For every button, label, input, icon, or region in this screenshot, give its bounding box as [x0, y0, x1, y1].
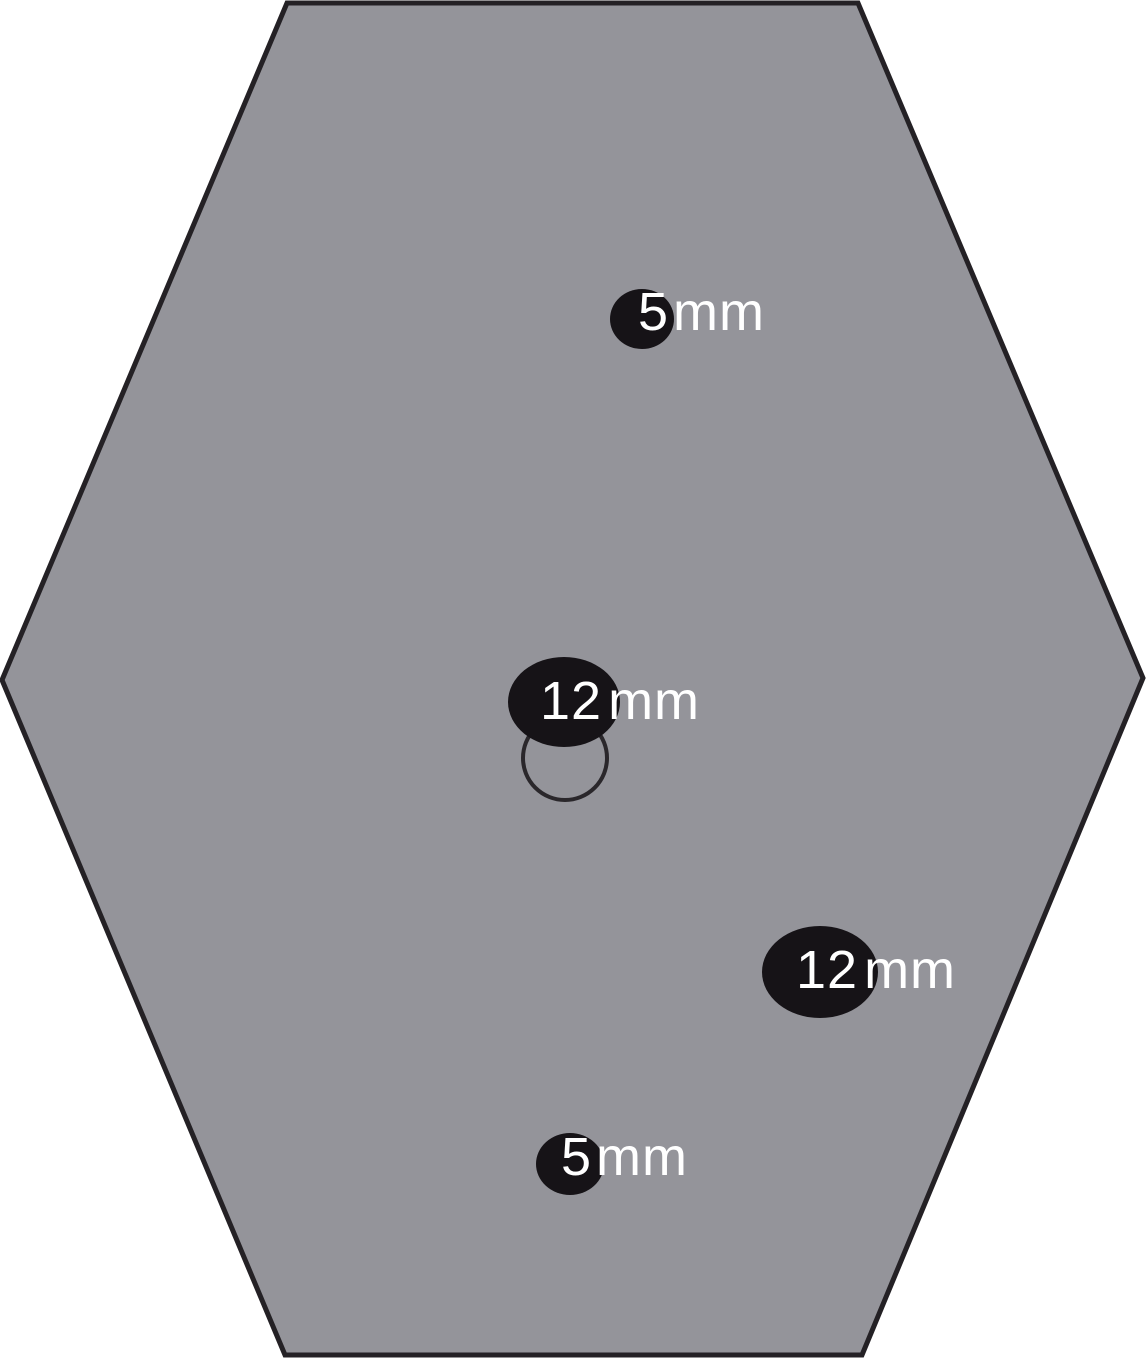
port-label-center: 12mm: [540, 671, 700, 731]
port-size: 12: [540, 671, 602, 731]
port-unit: mm: [596, 1127, 688, 1187]
port-label-upper: 5mm: [638, 282, 765, 342]
port-size: 12: [796, 940, 858, 1000]
port-placement-diagram: 5mm 12mm 12mm 5mm: [0, 0, 1146, 1360]
diagram-stage: 5mm 12mm 12mm 5mm: [0, 0, 1146, 1360]
port-label-lower-center: 5mm: [561, 1127, 688, 1187]
port-unit: mm: [673, 282, 765, 342]
port-unit: mm: [608, 671, 700, 731]
port-size: 5: [561, 1127, 592, 1187]
port-label-lower-right: 12mm: [796, 940, 956, 1000]
port-unit: mm: [864, 940, 956, 1000]
port-size: 5: [638, 282, 669, 342]
